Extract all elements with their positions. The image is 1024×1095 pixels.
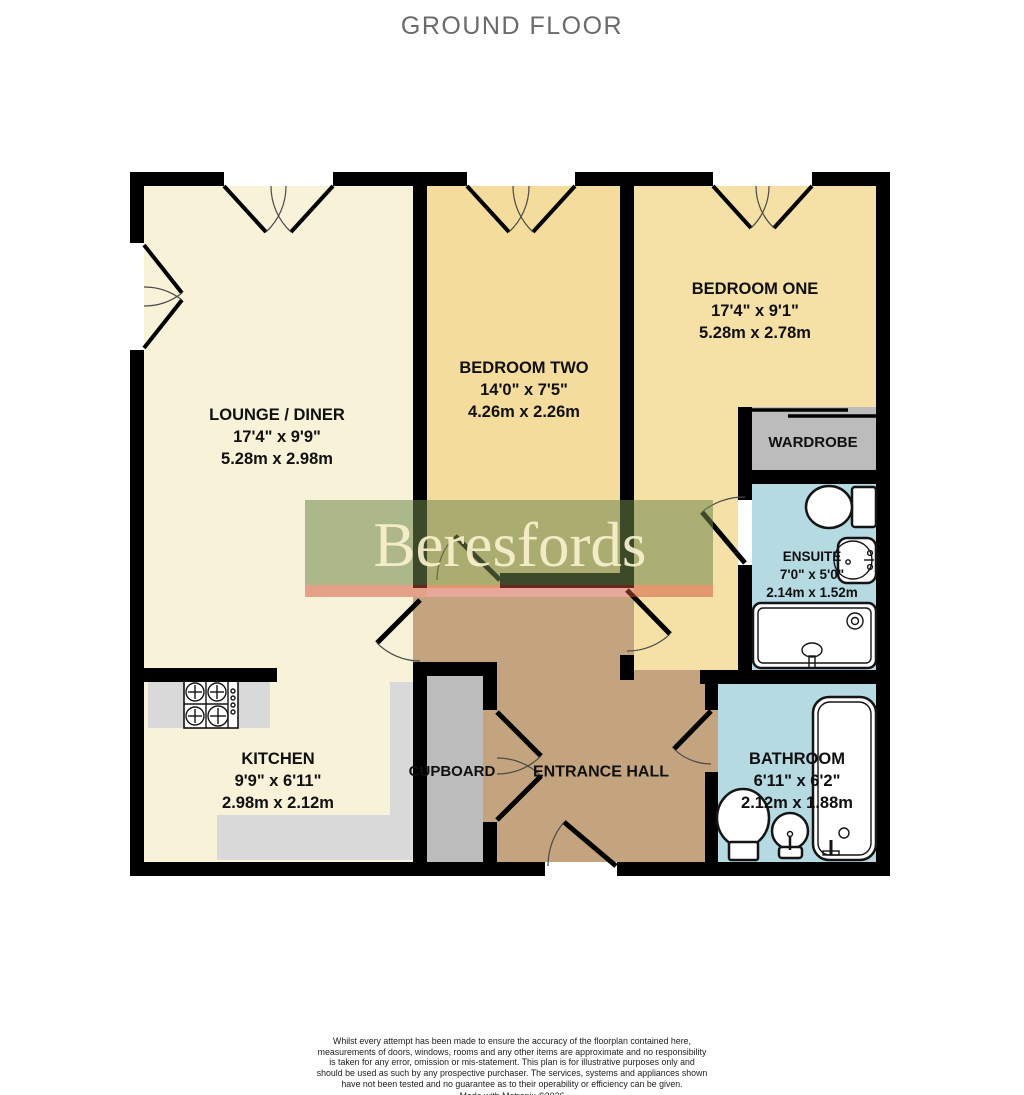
room-metric: 2.14m x 1.52m bbox=[766, 584, 858, 602]
label-bathroom: BATHROOM 6'11" x 6'2" 2.12m x 1.88m bbox=[741, 748, 853, 814]
room-metric: 4.26m x 2.26m bbox=[459, 401, 588, 423]
room-name: BATHROOM bbox=[741, 748, 853, 770]
room-metric: 5.28m x 2.98m bbox=[209, 448, 345, 470]
credit-text: Made with Metropix ©2026 bbox=[0, 1091, 1024, 1095]
floorplan-page: GROUND FLOOR bbox=[0, 0, 1024, 1095]
label-bedroom-one: BEDROOM ONE 17'4" x 9'1" 5.28m x 2.78m bbox=[692, 278, 819, 344]
counter-bottom bbox=[217, 815, 413, 860]
room-imperial: 6'11" x 6'2" bbox=[741, 770, 853, 792]
room-metric: 2.12m x 1.88m bbox=[741, 792, 853, 814]
room-imperial: 9'9" x 6'11" bbox=[222, 770, 334, 792]
label-kitchen: KITCHEN 9'9" x 6'11" 2.98m x 2.12m bbox=[222, 748, 334, 814]
room-imperial: 14'0" x 7'5" bbox=[459, 379, 588, 401]
room-metric: 2.98m x 2.12m bbox=[222, 792, 334, 814]
room-metric: 5.28m x 2.78m bbox=[692, 322, 819, 344]
room-name: CUPBOARD bbox=[409, 762, 496, 782]
bedroom-one-vestibule-floor bbox=[634, 186, 738, 670]
room-name: WARDROBE bbox=[768, 433, 857, 453]
room-imperial: 17'4" x 9'1" bbox=[692, 300, 819, 322]
room-name: BEDROOM ONE bbox=[692, 278, 819, 300]
room-name: ENSUITE bbox=[766, 548, 858, 566]
room-name: BEDROOM TWO bbox=[459, 357, 588, 379]
ensuite-shower-icon bbox=[753, 603, 876, 668]
room-name: LOUNGE / DINER bbox=[209, 404, 345, 426]
label-lounge-diner: LOUNGE / DINER 17'4" x 9'9" 5.28m x 2.98… bbox=[209, 404, 345, 470]
label-wardrobe: WARDROBE bbox=[768, 433, 857, 453]
ensuite-toilet-icon bbox=[806, 486, 876, 528]
label-ensuite: ENSUITE 7'0" x 5'0" 2.14m x 1.52m bbox=[766, 548, 858, 602]
room-imperial: 7'0" x 5'0" bbox=[766, 566, 858, 584]
footer: Whilst every attempt has been made to en… bbox=[0, 1036, 1024, 1095]
label-bedroom-two: BEDROOM TWO 14'0" x 7'5" 4.26m x 2.26m bbox=[459, 357, 588, 423]
label-cupboard: CUPBOARD bbox=[409, 762, 496, 782]
floorplan-drawing bbox=[0, 0, 1024, 1095]
room-imperial: 17'4" x 9'9" bbox=[209, 426, 345, 448]
room-name: KITCHEN bbox=[222, 748, 334, 770]
hob-icon bbox=[184, 680, 238, 728]
label-entrance-hall: ENTRANCE HALL bbox=[533, 761, 669, 782]
disclaimer-text: Whilst every attempt has been made to en… bbox=[316, 1036, 708, 1090]
room-name: ENTRANCE HALL bbox=[533, 761, 669, 782]
